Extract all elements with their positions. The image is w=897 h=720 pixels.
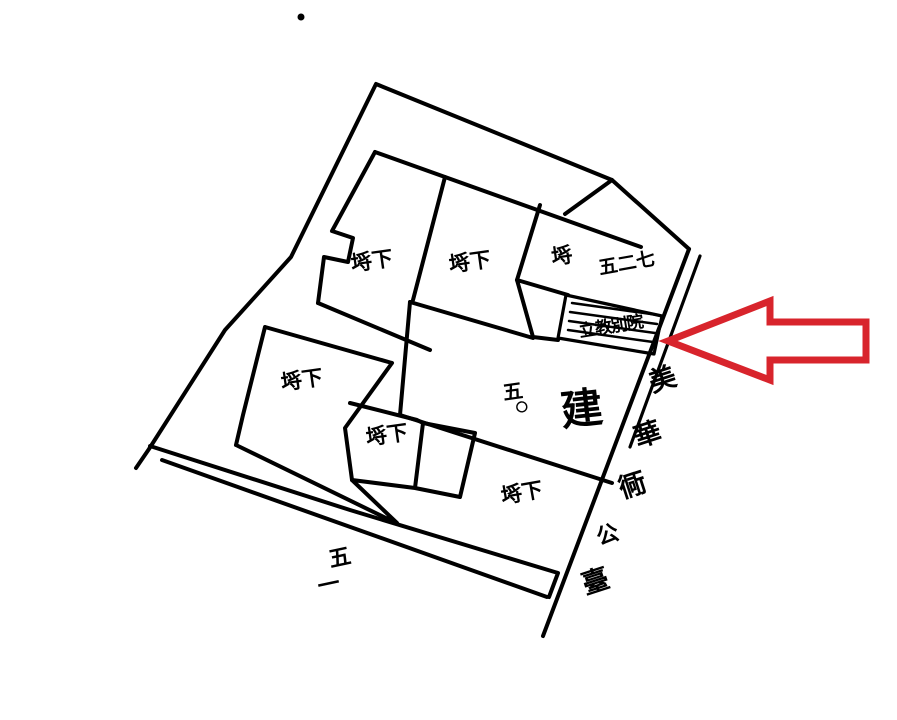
parcel-label-mid: 埓下 [364,420,409,450]
parcel-label-top-1: 埓下 [349,246,394,276]
top-row-left-edge-and-notch [318,152,375,303]
parcel-label-bottom: 埓下 [499,478,545,509]
mid-band-lower-edge [318,303,430,350]
highlight-arrow-left-icon [668,301,866,380]
top-row-divider-2 [517,205,540,280]
top-peak-connector [565,180,612,214]
parcel-label-top-3: 埓 [550,243,574,270]
cadastral-map-image: 埓下 埓下 埓 五二七 埓下 埓下 埓下 立教別院 五 〇 建 五 一 美 華 … [0,0,897,720]
center-lot-char-2: 〇 [515,399,529,416]
street-name-char-4: 公 [594,520,623,551]
bottom-street-lines [150,446,558,597]
street-name-char-3: 衕 [614,466,651,505]
ink-dot [298,14,305,21]
street-name-char-5: 臺 [578,563,613,601]
mid-parcel-top-edge [350,403,423,423]
parcel-label-left: 埓下 [279,365,324,395]
bottom-lot-char-2: 一 [316,571,343,600]
parcel-label-top-right-lot: 五二七 [597,248,657,280]
mid-band-upper-edge [410,302,533,338]
top-row-top-edge [375,152,641,247]
street-name-char-2: 華 [630,416,665,454]
top-row-divider-1 [413,177,445,300]
bottom-lot-char-1: 五 [327,544,354,573]
parcel-label-top-2: 埓下 [447,247,492,277]
cadastral-map-canvas: 埓下 埓下 埓 五二七 埓下 埓下 埓下 立教別院 五 〇 建 五 一 美 華 … [0,0,897,720]
center-parcel-left-edge [400,302,410,415]
center-landuse-char: 建 [558,382,605,435]
